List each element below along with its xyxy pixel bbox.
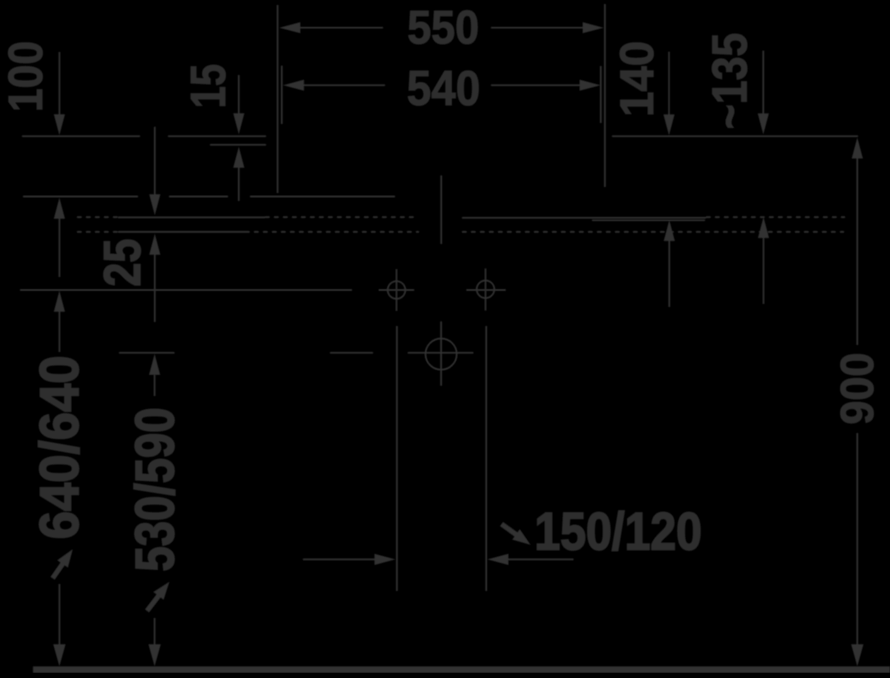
- svg-text:550: 550: [407, 1, 479, 54]
- svg-text:25: 25: [94, 239, 152, 287]
- svg-text:640/640: 640/640: [29, 355, 90, 539]
- svg-text:15: 15: [182, 64, 236, 109]
- svg-text:150/120: 150/120: [534, 503, 702, 562]
- svg-text:~135: ~135: [704, 33, 758, 130]
- svg-text:140: 140: [611, 41, 664, 117]
- svg-text:900: 900: [831, 353, 883, 425]
- svg-text:530/590: 530/590: [125, 408, 186, 572]
- svg-text:540: 540: [407, 61, 481, 116]
- svg-text:100: 100: [0, 41, 53, 112]
